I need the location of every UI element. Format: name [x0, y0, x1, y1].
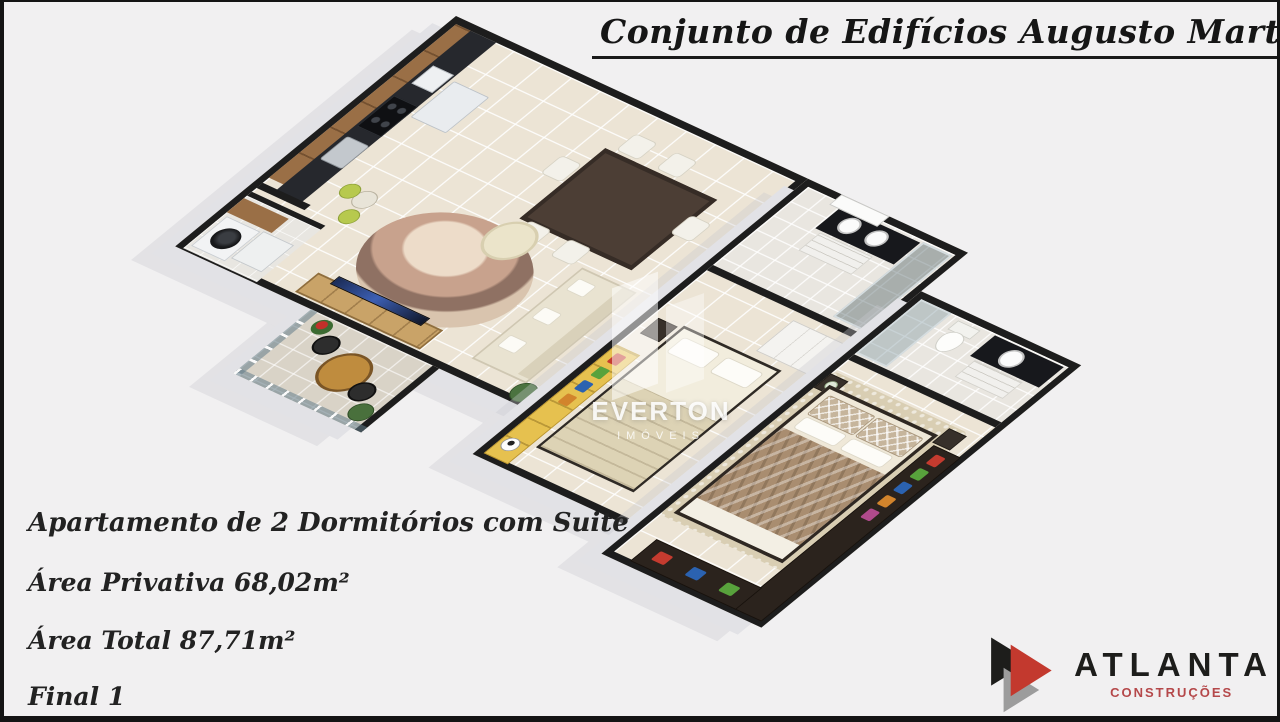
unit-number-label: Final 1	[28, 682, 125, 711]
apartment-description: Apartamento de 2 Dormitórios com Suite	[28, 508, 629, 538]
balcony-glass-railing	[233, 309, 317, 376]
sofa-pillow	[497, 335, 529, 355]
poster-title-text: Conjunto de Edifícios Augusto Martins	[592, 12, 1280, 59]
building-slab	[666, 293, 704, 393]
logo-text-block: ATLANTA CONSTRUÇÕES	[1074, 648, 1274, 700]
wardrobe-item	[893, 481, 914, 494]
flower-pot	[306, 317, 338, 337]
floor-plan-poster: Conjunto de Edifícios Augusto Martins Ap…	[0, 0, 1280, 722]
everton-watermark: EVERTON IMÓVEIS	[572, 278, 750, 442]
sofa-pillow	[531, 306, 563, 326]
building-slabs-icon	[572, 278, 750, 396]
private-area-label: Área Privativa 68,02m²	[28, 568, 350, 597]
wardrobe-item	[651, 551, 674, 565]
total-area-label: Área Total 87,71m²	[28, 626, 295, 655]
wardrobe-item	[718, 582, 741, 596]
wardrobe-item	[860, 508, 881, 521]
logo-name: ATLANTA	[1074, 648, 1274, 681]
wardrobe-item	[684, 567, 707, 581]
triple-arrow-icon	[984, 630, 1064, 718]
building-slab	[612, 272, 658, 401]
wardrobe-item	[925, 454, 946, 467]
watermark-name: EVERTON	[572, 396, 750, 427]
poster-title: Conjunto de Edifícios Augusto Martins	[592, 12, 1264, 51]
wardrobe-item	[876, 495, 897, 508]
watermark-tagline: IMÓVEIS	[572, 430, 750, 442]
bar-stool	[333, 207, 365, 227]
atlanta-logo: ATLANTA CONSTRUÇÕES	[984, 630, 1274, 718]
logo-tagline: CONSTRUÇÕES	[1074, 685, 1274, 700]
wardrobe-item	[909, 468, 930, 481]
